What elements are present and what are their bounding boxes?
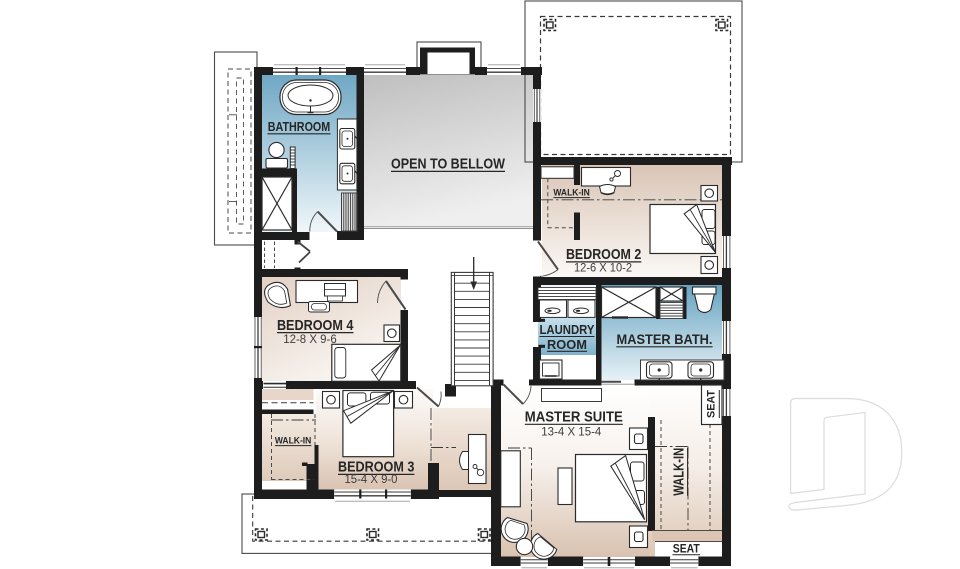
svg-text:13-4 X 15-4: 13-4 X 15-4 <box>541 426 602 438</box>
svg-text:SEAT: SEAT <box>673 544 700 556</box>
svg-text:SEAT: SEAT <box>706 390 718 418</box>
svg-text:BEDROOM 3: BEDROOM 3 <box>338 459 414 476</box>
svg-text:WALK-IN: WALK-IN <box>672 448 688 496</box>
svg-text:MASTER BATH.: MASTER BATH. <box>617 331 713 347</box>
svg-text:12-6 X 10-2: 12-6 X 10-2 <box>574 262 632 274</box>
svg-text:BEDROOM 4: BEDROOM 4 <box>277 317 354 334</box>
svg-text:OPEN TO BELLOW: OPEN TO BELLOW <box>391 156 506 173</box>
svg-text:12-8 X 9-6: 12-8 X 9-6 <box>283 334 337 346</box>
svg-text:WALK-IN: WALK-IN <box>553 188 590 198</box>
svg-text:BATHROOM: BATHROOM <box>268 119 331 134</box>
svg-text:WALK-IN: WALK-IN <box>275 436 312 446</box>
svg-text:MASTER SUITE: MASTER SUITE <box>525 409 623 426</box>
svg-text:BEDROOM 2: BEDROOM 2 <box>566 246 641 263</box>
svg-text:ROOM: ROOM <box>547 338 587 352</box>
svg-text:15-4 X 9-0: 15-4 X 9-0 <box>345 474 398 486</box>
svg-text:LAUNDRY: LAUNDRY <box>540 323 596 337</box>
